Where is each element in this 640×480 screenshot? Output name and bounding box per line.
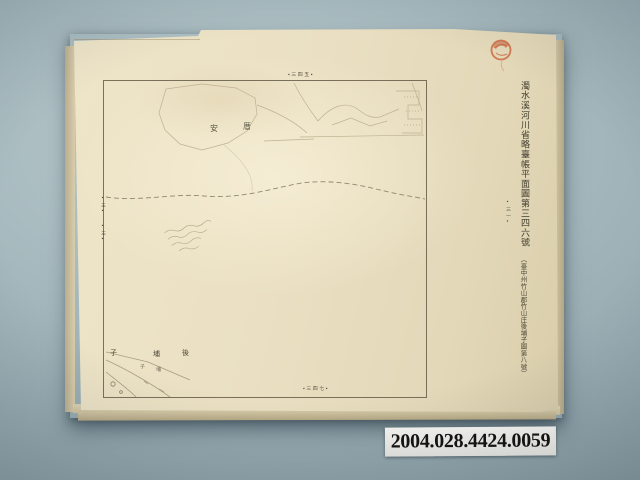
photo-backdrop: 濁水溪河川省略臺帳平面圖第三四六號 （臺中州竹山郡竹山庄後埔子圖第八號） ▪三四… <box>0 0 640 480</box>
photo-vignette <box>0 0 640 480</box>
